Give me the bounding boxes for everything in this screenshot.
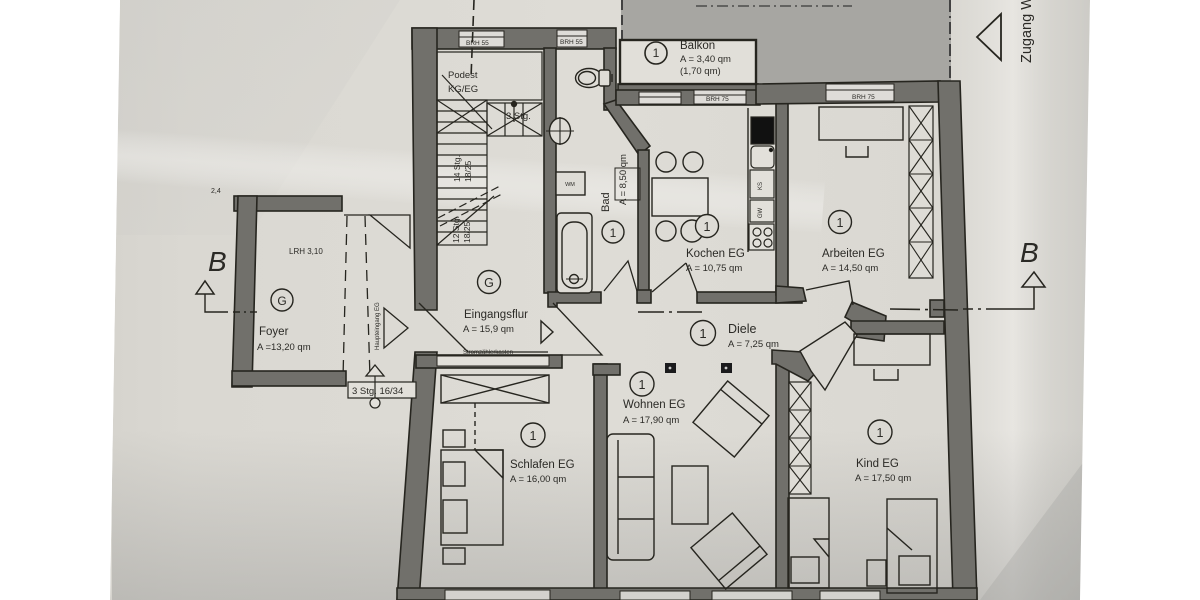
svg-text:LRH 3,10: LRH 3,10 bbox=[289, 247, 323, 256]
svg-text:Zugang Whg: Zugang Whg bbox=[1019, 0, 1035, 63]
svg-text:BRH 55: BRH 55 bbox=[466, 40, 489, 47]
svg-text:Wohnen EG: Wohnen EG bbox=[623, 399, 685, 411]
svg-text:A = 15,9 qm: A = 15,9 qm bbox=[463, 324, 514, 335]
svg-text:A = 17,50 qm: A = 17,50 qm bbox=[855, 473, 911, 484]
svg-text:Eingangsflur: Eingangsflur bbox=[464, 309, 528, 321]
svg-text:A = 7,25 qm: A = 7,25 qm bbox=[728, 339, 779, 350]
svg-text:18/25: 18/25 bbox=[462, 221, 472, 243]
svg-text:BRH 75: BRH 75 bbox=[852, 94, 875, 101]
svg-text:Schlafen EG: Schlafen EG bbox=[510, 459, 575, 471]
svg-text:Arbeiten EG: Arbeiten EG bbox=[822, 248, 885, 260]
svg-text:Kochen EG: Kochen EG bbox=[686, 248, 745, 260]
svg-text:G: G bbox=[277, 294, 286, 308]
svg-text:BRH 75: BRH 75 bbox=[706, 96, 729, 103]
svg-text:GW: GW bbox=[758, 208, 764, 219]
svg-text:G: G bbox=[484, 276, 494, 290]
svg-text:18/25: 18/25 bbox=[463, 160, 473, 182]
svg-text:3 Stg. 16/34: 3 Stg. 16/34 bbox=[352, 386, 403, 397]
svg-text:Foyer: Foyer bbox=[259, 326, 289, 338]
svg-text:Diele: Diele bbox=[728, 322, 757, 336]
svg-text:1: 1 bbox=[530, 429, 537, 443]
svg-text:BRH 55: BRH 55 bbox=[560, 39, 583, 46]
svg-text:KG/EG: KG/EG bbox=[448, 84, 478, 95]
svg-text:1: 1 bbox=[653, 46, 660, 60]
svg-text:A =13,20 qm: A =13,20 qm bbox=[257, 342, 311, 353]
svg-text:1: 1 bbox=[610, 226, 617, 240]
svg-text:1: 1 bbox=[704, 220, 711, 234]
svg-text:A = 10,75 qm: A = 10,75 qm bbox=[686, 263, 742, 274]
svg-text:14 Stg.: 14 Stg. bbox=[452, 155, 462, 182]
svg-text:Stromzählerkasten: Stromzählerkasten bbox=[463, 350, 513, 356]
svg-text:A = 3,40 qm: A = 3,40 qm bbox=[680, 54, 731, 65]
svg-text:Bad: Bad bbox=[600, 192, 612, 212]
svg-text:Haupteingang EG: Haupteingang EG bbox=[375, 302, 381, 350]
svg-text:Podest: Podest bbox=[448, 70, 478, 81]
svg-text:1: 1 bbox=[699, 326, 706, 341]
svg-text:1: 1 bbox=[639, 378, 646, 392]
svg-text:Kind EG: Kind EG bbox=[856, 458, 899, 470]
svg-text:A = 8,50 qm: A = 8,50 qm bbox=[618, 154, 629, 205]
svg-text:KS: KS bbox=[758, 182, 764, 190]
svg-text:B: B bbox=[208, 246, 227, 277]
svg-text:Balkon: Balkon bbox=[680, 40, 715, 52]
svg-text:WM: WM bbox=[565, 182, 575, 188]
svg-text:A = 14,50 qm: A = 14,50 qm bbox=[822, 263, 878, 274]
svg-text:2,4: 2,4 bbox=[211, 188, 221, 195]
svg-text:A = 16,00 qm: A = 16,00 qm bbox=[510, 474, 566, 485]
svg-text:1: 1 bbox=[837, 216, 844, 230]
svg-text:A = 17,90 qm: A = 17,90 qm bbox=[623, 415, 679, 426]
svg-text:1: 1 bbox=[877, 426, 884, 440]
svg-text:3 Stg.: 3 Stg. bbox=[506, 111, 531, 122]
svg-text:12 Stg.: 12 Stg. bbox=[451, 216, 461, 243]
svg-text:B: B bbox=[1020, 237, 1039, 268]
svg-text:(1,70 qm): (1,70 qm) bbox=[680, 66, 721, 77]
